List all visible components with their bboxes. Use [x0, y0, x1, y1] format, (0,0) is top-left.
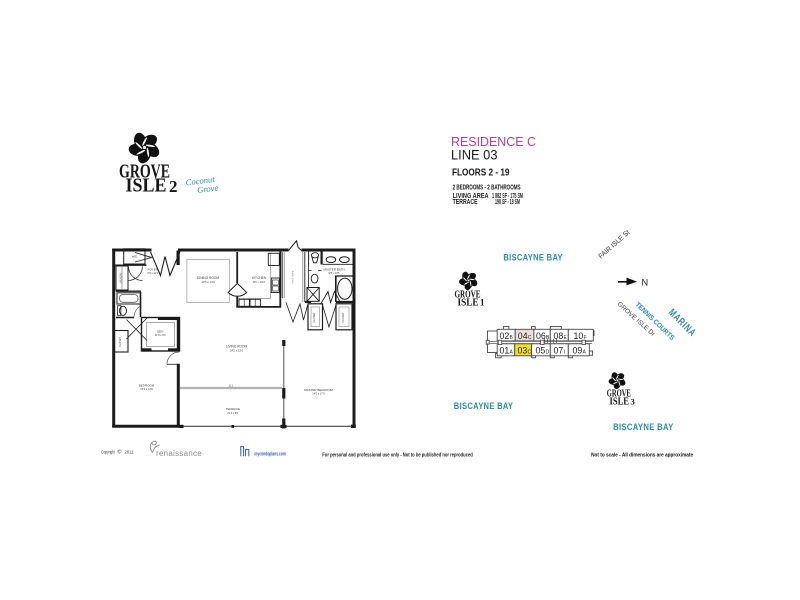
svg-text:D: D — [546, 350, 550, 356]
svg-text:01: 01 — [500, 345, 510, 355]
svg-text:8'9 x 13'2: 8'9 x 13'2 — [253, 280, 265, 284]
svg-text:06: 06 — [536, 331, 546, 341]
svg-text:03: 03 — [518, 345, 528, 355]
svg-text:198 SF - 18 SM: 198 SF - 18 SM — [495, 199, 520, 206]
svg-text:C: C — [528, 350, 532, 356]
svg-text:04: 04 — [518, 331, 528, 341]
svg-text:14'0 x 17'0: 14'0 x 17'0 — [312, 392, 325, 396]
svg-text:HIS & HERS: HIS & HERS — [293, 270, 295, 283]
svg-text:2 BEDROOMS - 2 BATHROOMS: 2 BEDROOMS - 2 BATHROOMS — [453, 184, 521, 191]
svg-text:©: © — [118, 449, 122, 456]
svg-text:05: 05 — [536, 345, 546, 355]
svg-text:mycondoplans.com: mycondoplans.com — [254, 451, 286, 457]
svg-text:DEN: DEN — [157, 330, 163, 334]
svg-text:ISLE: ISLE — [126, 175, 167, 197]
svg-text:F: F — [584, 335, 587, 341]
svg-text:renaissance: renaissance — [156, 449, 202, 458]
svg-text:Copyright: Copyright — [101, 449, 115, 454]
svg-text:08: 08 — [554, 331, 564, 341]
svg-text:LAUNDRY: LAUNDRY — [120, 272, 123, 284]
svg-text:BEDROOM: BEDROOM — [139, 384, 155, 388]
svg-text:CLOSET: CLOSET — [118, 336, 122, 347]
svg-text:ISLE: ISLE — [610, 396, 630, 407]
svg-text:9'8 x 13'5: 9'8 x 13'5 — [329, 271, 340, 275]
svg-text:13'4 x 13'0: 13'4 x 13'0 — [140, 387, 153, 391]
svg-text:For personal and professional: For personal and professional use only -… — [322, 452, 473, 458]
svg-text:C: C — [528, 335, 532, 341]
svg-text:13'5 x 14'0: 13'5 x 14'0 — [201, 280, 215, 284]
svg-text:FOYER: FOYER — [148, 267, 159, 271]
svg-text:09: 09 — [573, 345, 583, 355]
svg-text:MASTER BATH: MASTER BATH — [323, 267, 344, 271]
svg-text:6'5 x 11'1: 6'5 x 11'1 — [147, 271, 158, 275]
svg-text:24'2 x 15'0: 24'2 x 15'0 — [230, 348, 244, 352]
svg-text:BISCAYNE BAY: BISCAYNE BAY — [503, 253, 563, 264]
svg-text:BISCAYNE BAY: BISCAYNE BAY — [613, 422, 674, 433]
svg-text:LINE 03: LINE 03 — [451, 148, 498, 163]
svg-text:02: 02 — [500, 331, 510, 341]
svg-text:MASTER BEDROOM: MASTER BEDROOM — [304, 388, 333, 392]
svg-text:W/D: W/D — [132, 255, 137, 259]
svg-text:BISCAYNE BAY: BISCAYNE BAY — [454, 401, 514, 412]
svg-text:CLOSET: CLOSET — [341, 312, 345, 323]
svg-text:N: N — [642, 277, 649, 287]
svg-text:21'4 x 8'0: 21'4 x 8'0 — [227, 411, 238, 415]
svg-text:2: 2 — [169, 177, 178, 196]
svg-text:3: 3 — [631, 397, 635, 407]
svg-text:Not to scale - All dimensions: Not to scale - All dimensions are approx… — [591, 452, 693, 458]
svg-text:FAIR ISLE St: FAIR ISLE St — [598, 229, 632, 260]
svg-text:21'1: 21'1 — [229, 384, 234, 387]
svg-text:TERRACE: TERRACE — [226, 407, 240, 411]
svg-text:10: 10 — [574, 331, 584, 341]
svg-text:1: 1 — [480, 298, 485, 308]
svg-text:I: I — [564, 350, 565, 356]
svg-text:TERRACE: TERRACE — [453, 199, 478, 206]
svg-text:CLOSET: CLOSET — [312, 312, 316, 323]
svg-text:Grove: Grove — [197, 182, 219, 195]
svg-text:2011: 2011 — [125, 449, 134, 454]
svg-text:07: 07 — [554, 345, 564, 355]
svg-text:ISLE: ISLE — [458, 297, 479, 309]
svg-text:11'0 x 9'6: 11'0 x 9'6 — [155, 333, 166, 337]
svg-text:FLOORS 2 - 19: FLOORS 2 - 19 — [452, 167, 510, 178]
